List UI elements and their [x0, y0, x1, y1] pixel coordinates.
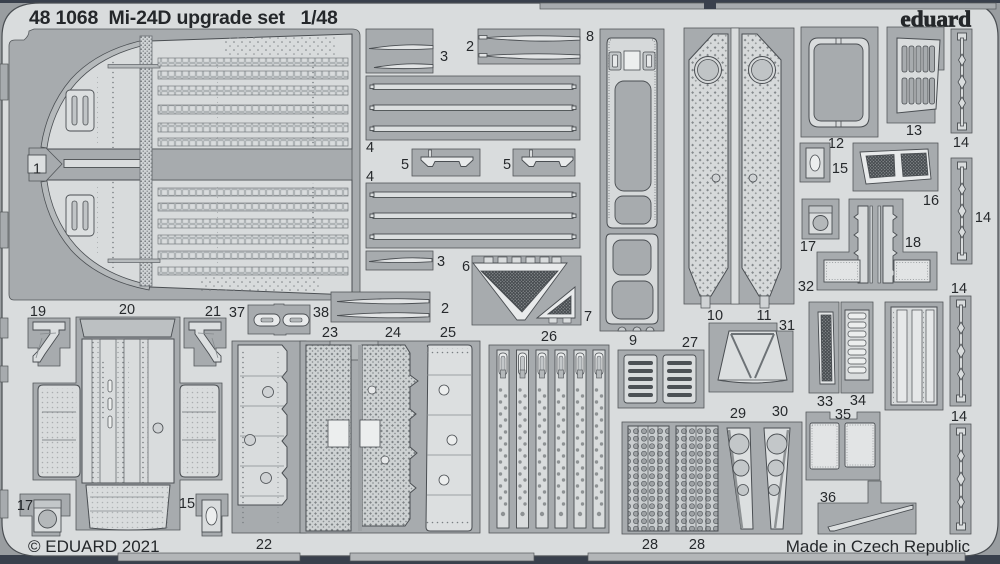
svg-text:19: 19 [30, 304, 46, 320]
svg-text:48 1068 Mi-24D upgrade set: 48 1068 Mi-24D upgrade set 1/48 [29, 7, 338, 29]
svg-text:23: 23 [322, 325, 338, 341]
svg-text:18: 18 [905, 235, 921, 251]
svg-text:4: 4 [366, 169, 374, 185]
svg-text:5: 5 [503, 157, 511, 173]
svg-text:Made in Czech Republic: Made in Czech Republic [786, 537, 971, 556]
svg-text:25: 25 [440, 325, 456, 341]
svg-text:11: 11 [756, 308, 771, 324]
svg-text:33: 33 [817, 394, 833, 410]
svg-text:5: 5 [401, 157, 409, 173]
svg-text:31: 31 [779, 318, 795, 334]
svg-text:1: 1 [33, 161, 41, 177]
svg-text:15: 15 [832, 161, 848, 177]
svg-text:17: 17 [17, 498, 33, 514]
svg-text:27: 27 [682, 335, 698, 351]
svg-text:14: 14 [975, 210, 991, 226]
svg-text:30: 30 [772, 404, 788, 420]
svg-text:4: 4 [366, 140, 374, 156]
svg-text:32: 32 [798, 279, 814, 295]
svg-text:28: 28 [689, 537, 705, 553]
svg-text:28: 28 [642, 537, 658, 553]
svg-text:8: 8 [586, 29, 594, 45]
svg-text:6: 6 [462, 259, 470, 275]
svg-text:34: 34 [850, 393, 866, 409]
svg-text:14: 14 [953, 135, 969, 151]
svg-text:35: 35 [835, 407, 851, 423]
svg-text:36: 36 [820, 490, 836, 506]
svg-text:© EDUARD 2021: © EDUARD 2021 [28, 537, 160, 556]
svg-text:7: 7 [584, 309, 592, 325]
svg-text:2: 2 [441, 301, 449, 317]
svg-text:22: 22 [256, 537, 272, 553]
svg-text:29: 29 [730, 406, 746, 422]
svg-text:14: 14 [951, 409, 967, 425]
svg-text:21: 21 [205, 304, 221, 320]
svg-text:37: 37 [229, 305, 245, 321]
svg-text:3: 3 [437, 254, 445, 270]
svg-text:20: 20 [119, 302, 135, 318]
svg-text:9: 9 [629, 333, 637, 349]
svg-text:10: 10 [707, 308, 723, 324]
svg-text:26: 26 [541, 329, 557, 345]
svg-text:2: 2 [466, 39, 474, 55]
svg-text:3: 3 [440, 49, 448, 65]
svg-text:15: 15 [179, 496, 195, 512]
svg-text:38: 38 [313, 305, 329, 321]
svg-text:17: 17 [800, 239, 816, 255]
svg-text:13: 13 [906, 123, 922, 139]
svg-text:16: 16 [923, 193, 939, 209]
svg-text:24: 24 [385, 325, 401, 341]
svg-text:14: 14 [951, 281, 967, 297]
